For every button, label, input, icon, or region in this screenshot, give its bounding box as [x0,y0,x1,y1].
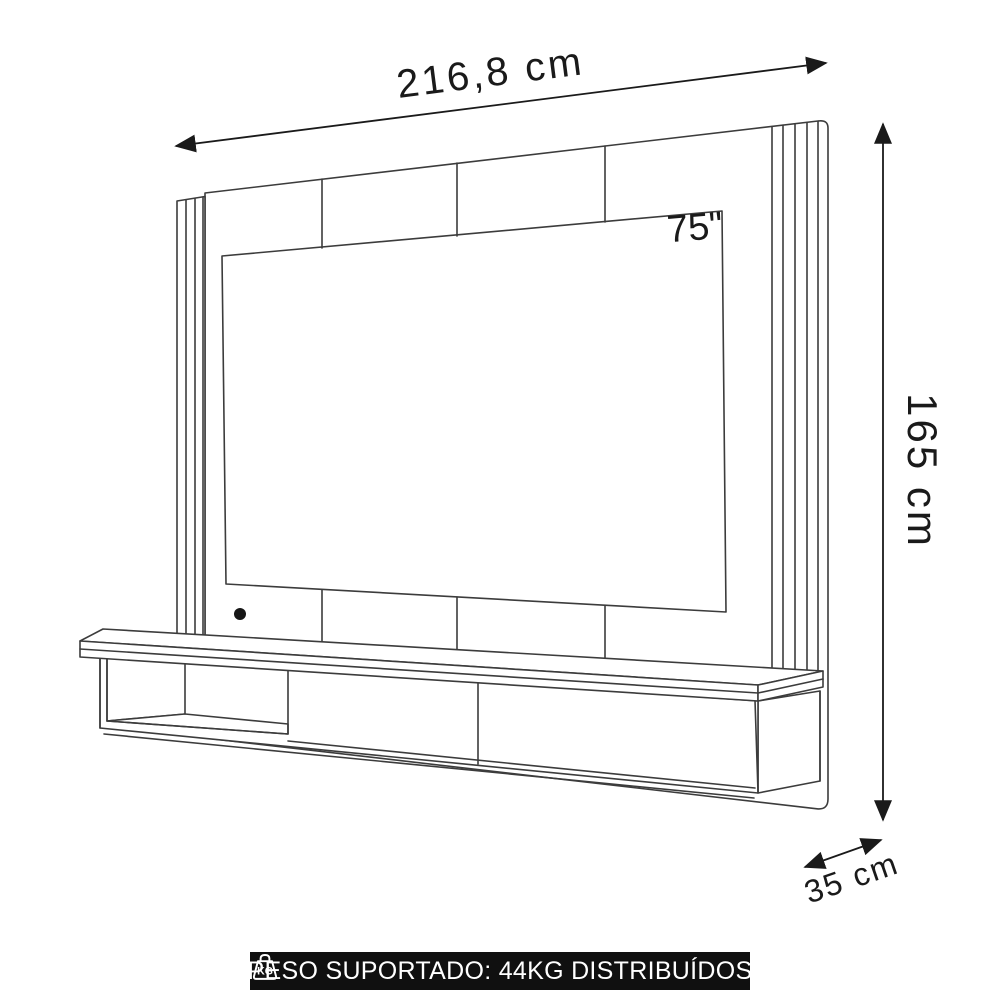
height-dimension-label: 165 cm [899,393,946,549]
weight-capacity-text: PESO SUPORTADO: 44KG DISTRIBUÍDOS [248,957,753,986]
tv-size-label: 75" [665,205,724,252]
height-dimension: 165 cm [883,124,946,820]
kg-icon-label: KG [257,965,273,977]
kg-weight-icon: KG [250,952,280,981]
niche-left-wall [107,656,185,721]
depth-dimension-label: 35 cm [800,845,904,911]
line-art: 75" [0,0,1000,1000]
depth-dimension: 35 cm [800,840,904,910]
width-dimension: 216,8 cm [176,39,826,146]
shelf-right-side-face [758,691,820,793]
dimension-diagram: 75" [0,0,1000,1000]
weight-capacity-banner: KG PESO SUPORTADO: 44KG DISTRIBUÍDOS [250,952,750,990]
panel-left-slat-block [177,197,205,641]
power-led-dot [234,608,246,620]
